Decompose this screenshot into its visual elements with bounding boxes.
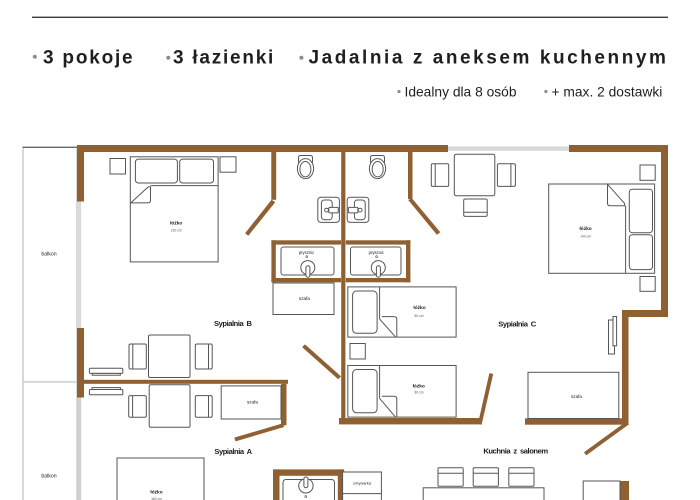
svg-text:160 cm: 160 cm bbox=[171, 228, 182, 232]
svg-text:łóżko: łóżko bbox=[150, 490, 162, 496]
svg-text:prysznic: prysznic bbox=[299, 250, 314, 255]
svg-text:+ max. 2 dostawki: + max. 2 dostawki bbox=[552, 84, 663, 99]
svg-text:Sypialnia A: Sypialnia A bbox=[214, 447, 252, 456]
svg-text:balkon: balkon bbox=[41, 252, 56, 258]
svg-text:łóżko: łóżko bbox=[170, 221, 182, 227]
svg-text:Kuchnia z salonem: Kuchnia z salonem bbox=[483, 447, 548, 456]
svg-text:80 cm: 80 cm bbox=[415, 314, 424, 318]
svg-text:3 pokoje: 3 pokoje bbox=[43, 48, 134, 69]
svg-text:3 łazienki: 3 łazienki bbox=[173, 48, 275, 69]
svg-text:Sypialnia C: Sypialnia C bbox=[498, 320, 537, 329]
svg-text:łóżko: łóżko bbox=[579, 226, 591, 232]
svg-text:szafa: szafa bbox=[247, 400, 258, 405]
svg-text:80 cm: 80 cm bbox=[415, 391, 424, 395]
svg-text:Idealny dla 8 osób: Idealny dla 8 osób bbox=[405, 84, 517, 99]
svg-text:szafa: szafa bbox=[299, 296, 310, 301]
svg-text:zmywarka: zmywarka bbox=[353, 481, 372, 486]
svg-text:łóżko: łóżko bbox=[413, 384, 425, 390]
svg-text:łóżko: łóżko bbox=[413, 305, 425, 311]
svg-text:balkon: balkon bbox=[41, 473, 56, 479]
svg-text:prysznic: prysznic bbox=[369, 250, 384, 255]
svg-text:Sypialnia B: Sypialnia B bbox=[214, 319, 253, 328]
svg-text:szafa: szafa bbox=[571, 394, 582, 399]
svg-text:140 cm: 140 cm bbox=[580, 234, 591, 238]
svg-text:Jadalnia z aneksem kuchennym: Jadalnia z aneksem kuchennym bbox=[309, 48, 669, 69]
